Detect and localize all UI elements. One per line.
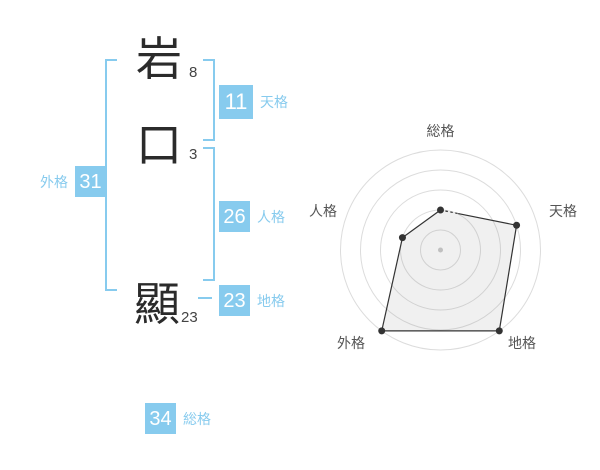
surname-char-2-stroke-count: 3 bbox=[189, 147, 197, 162]
radar-data-point bbox=[378, 327, 385, 334]
name-fortune-page: 岩 8 口 3 顯 23 11 天格 26 人格 23 地格 外格 31 34 … bbox=[0, 0, 600, 470]
jinkaku-label: 人格 bbox=[257, 210, 285, 224]
chikaku-dash bbox=[198, 297, 212, 299]
radar-chart: 総格天格地格外格人格 bbox=[295, 112, 595, 367]
radar-axis-label: 外格 bbox=[337, 335, 365, 351]
radar-axis-label: 人格 bbox=[309, 203, 337, 219]
gaikaku-value-badge: 31 bbox=[75, 166, 106, 197]
tenkaku-label: 天格 bbox=[260, 95, 288, 109]
jinkaku-value-badge: 26 bbox=[219, 201, 250, 232]
chikaku-value-badge: 23 bbox=[219, 285, 250, 316]
given-name-char-1: 顯 bbox=[134, 281, 180, 327]
radar-data-point bbox=[513, 222, 520, 229]
radar-axis-label: 天格 bbox=[549, 203, 577, 219]
soukaku-value-badge: 34 bbox=[145, 403, 176, 434]
radar-data-fill bbox=[382, 210, 517, 331]
gaikaku-group: 外格 31 bbox=[40, 166, 106, 197]
jinkaku-bracket bbox=[203, 147, 215, 281]
surname-char-1-stroke-count: 8 bbox=[189, 65, 197, 80]
soukaku-group: 34 総格 bbox=[145, 403, 211, 434]
chikaku-label: 地格 bbox=[257, 294, 285, 308]
radar-data-point bbox=[399, 234, 406, 241]
soukaku-label: 総格 bbox=[183, 412, 211, 426]
radar-data-point bbox=[437, 207, 444, 214]
radar-axis-label: 地格 bbox=[508, 335, 536, 351]
chikaku-group: 23 地格 bbox=[219, 285, 285, 316]
tenkaku-group: 11 天格 bbox=[219, 85, 288, 119]
radar-axis-label: 総格 bbox=[427, 123, 455, 139]
jinkaku-group: 26 人格 bbox=[219, 201, 285, 232]
surname-char-1: 岩 bbox=[136, 36, 182, 82]
tenkaku-value-badge: 11 bbox=[219, 85, 253, 119]
gaikaku-bracket bbox=[105, 59, 117, 291]
tenkaku-bracket bbox=[203, 59, 215, 141]
radar-data-point bbox=[496, 327, 503, 334]
given-name-char-1-stroke-count: 23 bbox=[181, 310, 198, 325]
gaikaku-label: 外格 bbox=[40, 175, 68, 189]
surname-char-2: 口 bbox=[136, 122, 182, 168]
